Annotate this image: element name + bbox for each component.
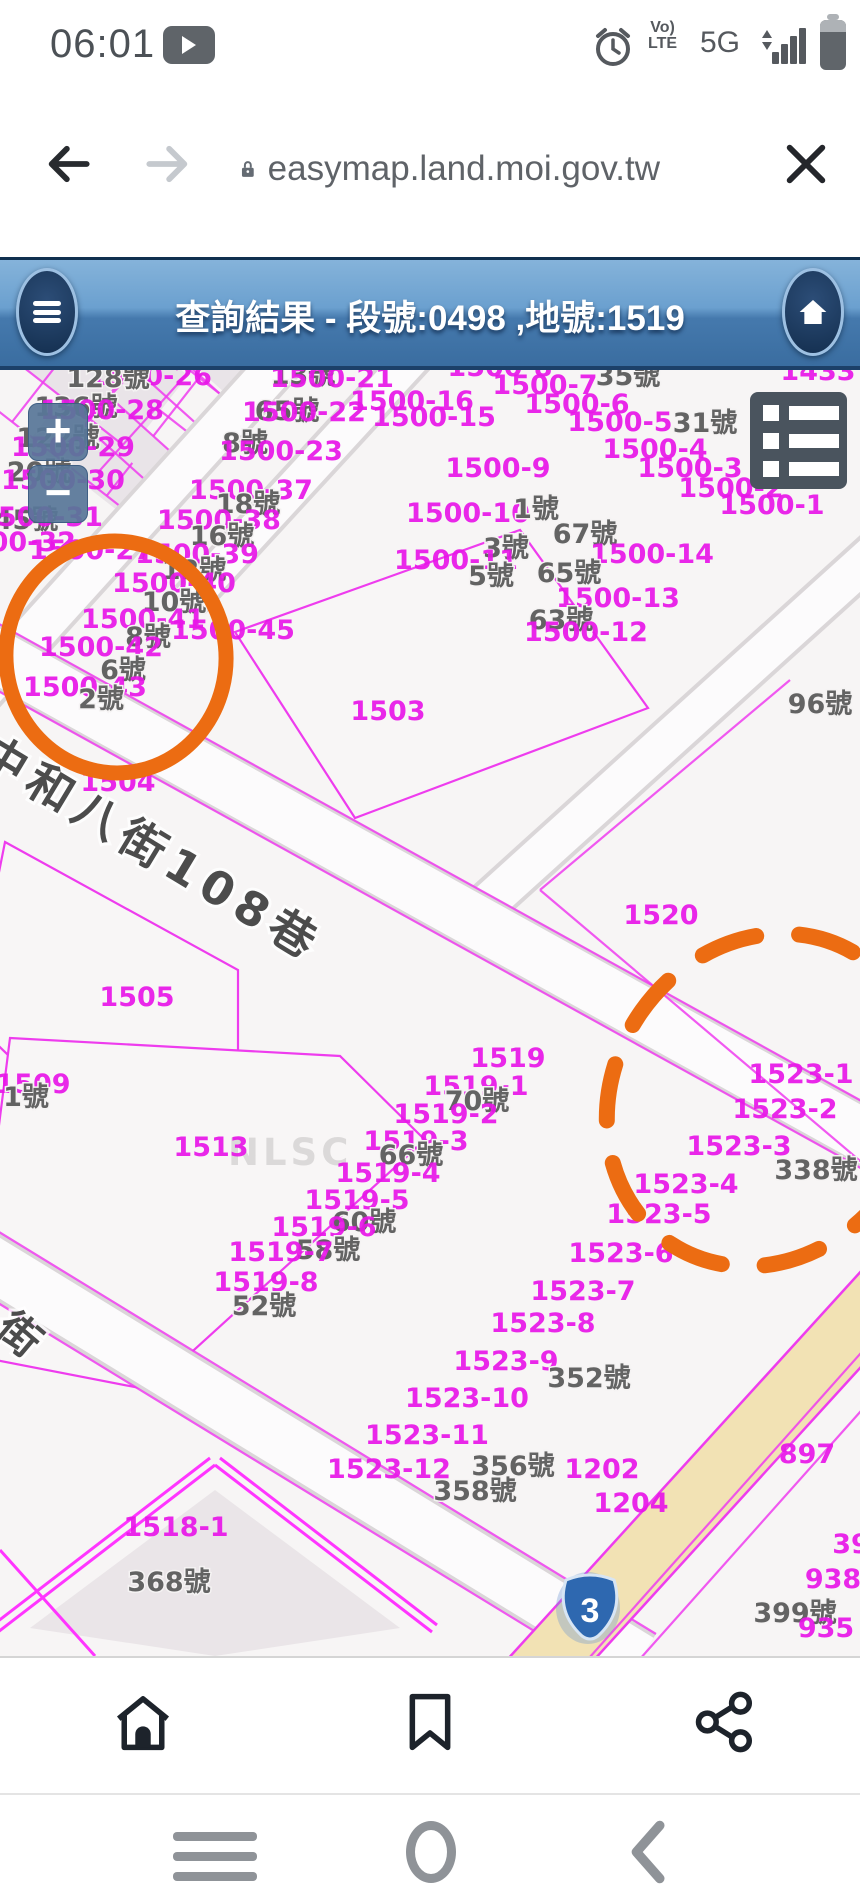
- parcel-number-label: 1500-9: [445, 453, 550, 484]
- android-back-button[interactable]: [622, 1817, 672, 1887]
- parcel-number-label: 1523-7: [530, 1276, 635, 1307]
- parcel-number-label: 1523-6: [568, 1238, 673, 1269]
- phone-screen: 06:01 Vo)LTE 5G: [0, 0, 860, 1904]
- cadastral-map[interactable]: NLSC 中和八街108巷 街 1500-26128號13號1500-21150…: [0, 370, 860, 1656]
- android-nav-bar: [0, 1793, 860, 1904]
- parcel-number-label: 1523-11: [365, 1420, 489, 1451]
- volte-icon: Vo)LTE: [648, 20, 677, 52]
- battery-icon: [820, 20, 846, 70]
- browser-toolbar: easymap.land.moi.gov.tw: [0, 96, 860, 256]
- footer-home-button[interactable]: [112, 1690, 174, 1754]
- clock-time: 06:01: [50, 22, 155, 67]
- home-button[interactable]: [782, 268, 844, 356]
- house-number-label: 1號: [3, 1082, 49, 1113]
- signal-strength-icon: [762, 26, 808, 68]
- android-menu-button[interactable]: [173, 1821, 257, 1892]
- parcel-number-label: 1523-4: [633, 1169, 738, 1200]
- parcel-number-label: 1519-7: [228, 1237, 333, 1268]
- footer-share-button[interactable]: [694, 1690, 756, 1754]
- back-arrow-button[interactable]: [40, 136, 96, 192]
- svg-text:3: 3: [581, 1592, 600, 1630]
- parcel-number-label: 1513: [173, 1132, 248, 1163]
- result-list-button[interactable]: [750, 392, 847, 489]
- parcel-number-label: 1523-10: [405, 1383, 529, 1414]
- parcel-number-label: 938: [805, 1564, 860, 1595]
- zoom-controls: + −: [28, 403, 88, 523]
- zoom-out-button[interactable]: −: [28, 465, 88, 523]
- menu-button[interactable]: [16, 268, 78, 356]
- url-bar[interactable]: easymap.land.moi.gov.tw: [240, 148, 660, 190]
- status-bar: 06:01 Vo)LTE 5G: [0, 0, 860, 96]
- parcel-number-label: 1202: [564, 1454, 639, 1485]
- parcel-number-label: 1500-10: [406, 498, 530, 529]
- parcel-number-label: 1523-8: [490, 1308, 595, 1339]
- house-number-label: 96號: [788, 689, 853, 720]
- alarm-clock-icon: [588, 22, 638, 72]
- parcel-number-label: 1433: [780, 370, 855, 387]
- parcel-number-label: 1519: [470, 1043, 545, 1074]
- page-title: 查詢結果 - 段號:0498 ,地號:1519: [110, 290, 750, 341]
- url-text: easymap.land.moi.gov.tw: [268, 149, 660, 189]
- parcel-number-label: 1500-23: [219, 436, 343, 467]
- parcel-number-label: 39: [832, 1529, 860, 1560]
- map-canvas: NLSC 中和八街108巷 街 1500-26128號13號1500-21150…: [0, 370, 860, 1656]
- house-number-label: 352號: [547, 1363, 630, 1394]
- parcel-number-label: 1518-1: [123, 1512, 228, 1543]
- house-number-label: 5號: [468, 561, 514, 592]
- parcel-number-label: 1500-1: [719, 490, 824, 521]
- house-number-label: 358號: [433, 1476, 516, 1507]
- parcel-number-label: 1500-22: [242, 397, 366, 428]
- parcel-number-label: 1523-9: [453, 1346, 558, 1377]
- footer-bookmark-button[interactable]: [402, 1690, 458, 1754]
- route-3-shield: 3: [556, 1572, 620, 1644]
- house-number-label: 52號: [232, 1291, 297, 1322]
- app-header: 查詢結果 - 段號:0498 ,地號:1519: [0, 257, 860, 370]
- house-number-label: 338號: [774, 1155, 857, 1186]
- parcel-number-label: 1503: [350, 696, 425, 727]
- parcel-number-label: 1500-14: [590, 539, 714, 570]
- house-number-label: 128號: [66, 370, 149, 394]
- android-home-button[interactable]: [406, 1821, 456, 1883]
- parcel-number-label: 1523-2: [732, 1094, 837, 1125]
- home-icon: [797, 296, 829, 328]
- parcel-number-label: 935: [798, 1613, 854, 1644]
- page-footer: [0, 1656, 860, 1792]
- forward-arrow-button[interactable]: [140, 136, 196, 192]
- lock-icon: [240, 148, 256, 190]
- parcel-number-label: 1204: [593, 1488, 668, 1519]
- house-number-label: 368號: [127, 1567, 210, 1598]
- house-number-label: 2號: [78, 684, 124, 715]
- network-type-5g: 5G: [700, 26, 740, 60]
- parcel-number-label: 897: [779, 1439, 835, 1470]
- parcel-number-label: 1500-45: [171, 615, 295, 646]
- zoom-in-button[interactable]: +: [28, 403, 88, 461]
- parcel-number-label: 1505: [99, 982, 174, 1013]
- parcel-number-label: 1520: [623, 900, 698, 931]
- parcel-number-label: 1523-1: [748, 1059, 853, 1090]
- close-tab-button[interactable]: [778, 136, 834, 192]
- parcel-number-label: 1500-15: [372, 402, 496, 433]
- parcel-number-label: 1500-12: [524, 617, 648, 648]
- youtube-notification-icon: [163, 26, 215, 64]
